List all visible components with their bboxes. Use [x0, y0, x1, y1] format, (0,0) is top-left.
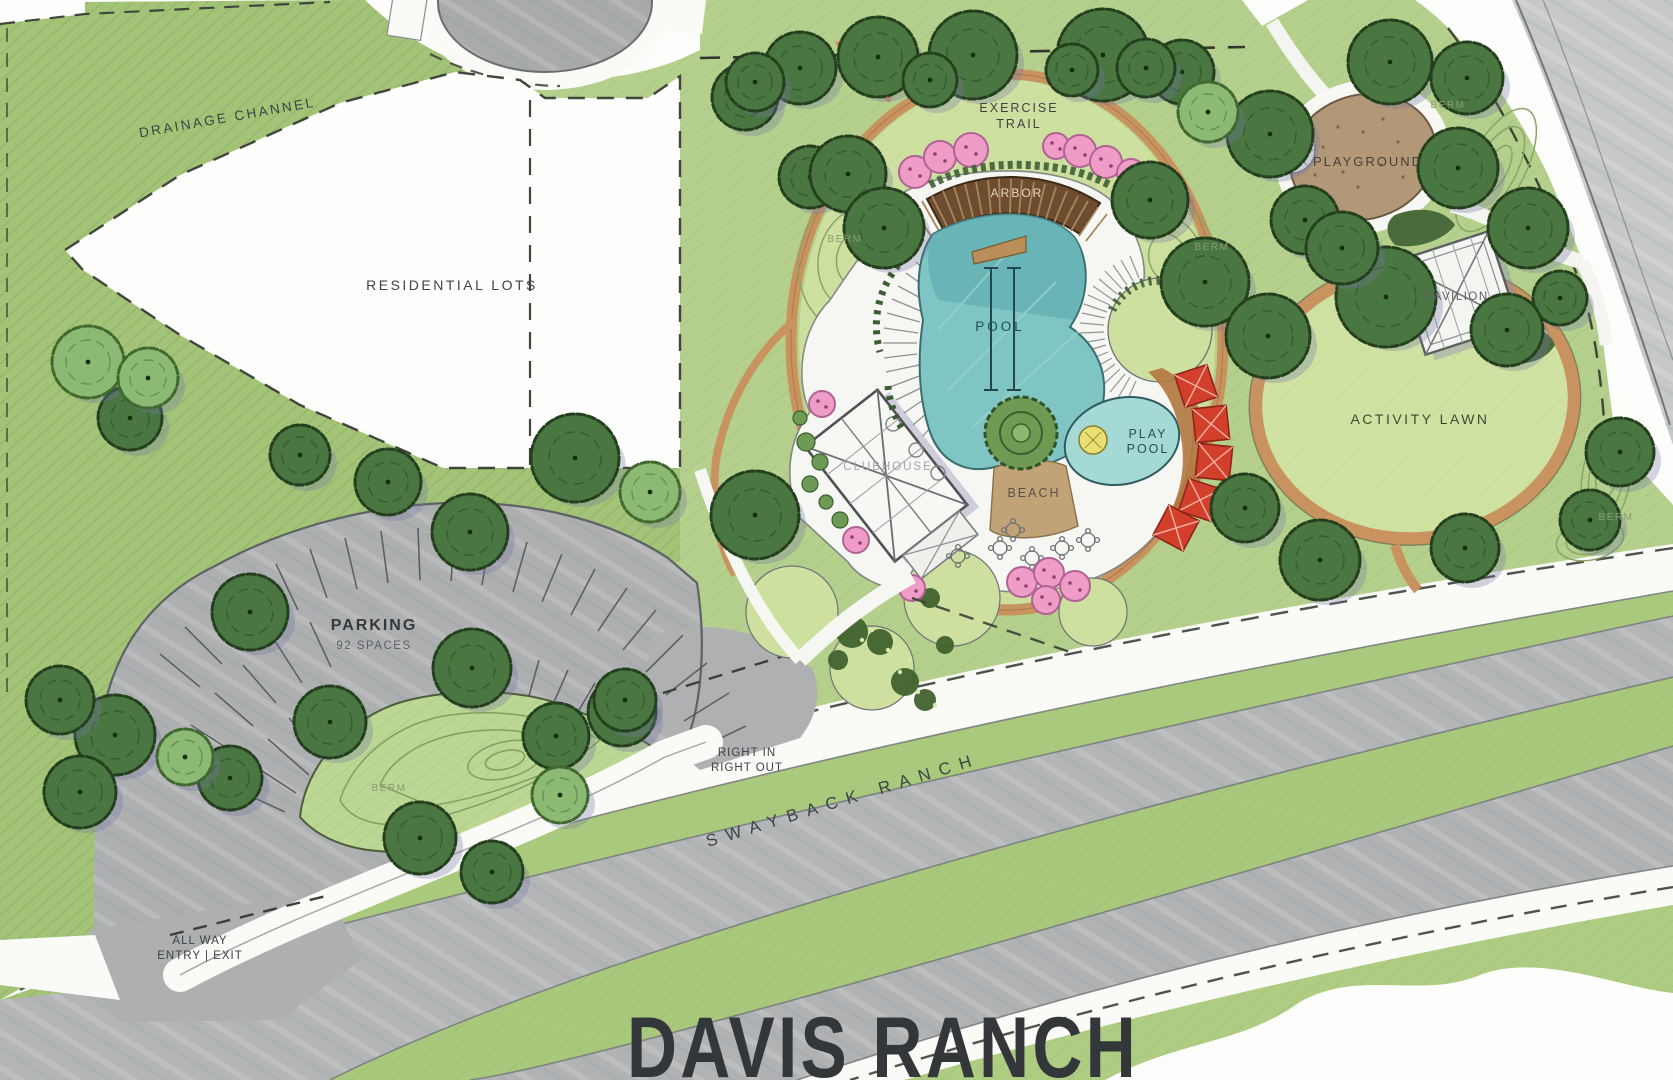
svg-text:POOL: POOL: [1127, 442, 1170, 456]
svg-text:DAVIS RANCH: DAVIS RANCH: [627, 1000, 1139, 1080]
svg-text:92 SPACES: 92 SPACES: [336, 640, 411, 652]
svg-text:PARKING: PARKING: [331, 617, 418, 634]
svg-text:BERM: BERM: [1195, 242, 1230, 253]
svg-text:BERM: BERM: [1431, 100, 1466, 111]
svg-text:ENTRY | EXIT: ENTRY | EXIT: [157, 950, 243, 962]
svg-text:CLUBHOUSE: CLUBHOUSE: [843, 461, 933, 473]
svg-text:ALL WAY: ALL WAY: [172, 935, 227, 947]
svg-text:BEACH: BEACH: [1007, 486, 1060, 500]
svg-text:RIGHT IN: RIGHT IN: [718, 747, 776, 759]
svg-text:PLAY: PLAY: [1128, 427, 1167, 441]
svg-text:BERM: BERM: [828, 234, 863, 245]
svg-text:BERM: BERM: [372, 783, 407, 794]
svg-text:ACTIVITY LAWN: ACTIVITY LAWN: [1350, 411, 1489, 427]
svg-text:PLAYGROUND: PLAYGROUND: [1313, 154, 1423, 169]
svg-text:RESIDENTIAL LOTS: RESIDENTIAL LOTS: [366, 277, 538, 293]
svg-text:RIGHT OUT: RIGHT OUT: [711, 762, 783, 774]
svg-text:POOL: POOL: [975, 319, 1025, 334]
svg-text:BERM: BERM: [1599, 512, 1634, 523]
svg-text:PAVILION: PAVILION: [1425, 291, 1488, 303]
svg-text:EXERCISE: EXERCISE: [979, 101, 1058, 115]
svg-text:ARBOR: ARBOR: [991, 186, 1044, 200]
svg-text:TRAIL: TRAIL: [996, 117, 1041, 131]
